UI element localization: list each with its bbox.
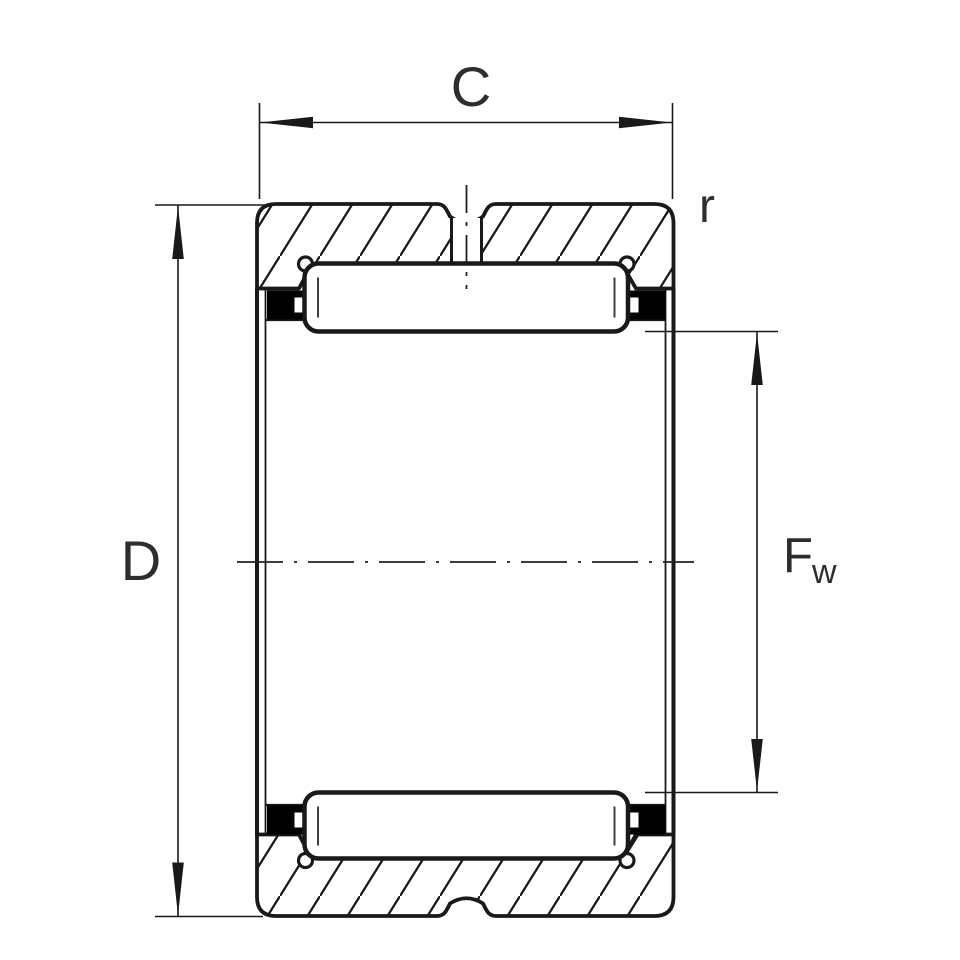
arrowhead-up (751, 333, 763, 385)
dimension-c: C (260, 55, 673, 199)
dimension-d: D (121, 205, 266, 917)
bearing-drawing-canvas: C D F w r (0, 0, 960, 960)
label-c: C (451, 55, 491, 118)
bearing-cross-section-diagram: C D F w r (0, 0, 960, 960)
arrowhead-down (172, 863, 184, 916)
needle-roller-bottom (305, 793, 629, 859)
label-fw-sub: w (811, 553, 837, 591)
arrowhead-right (619, 117, 672, 128)
label-fw-main: F (783, 529, 813, 583)
arrowhead-down (751, 739, 763, 791)
arrowhead-left (260, 117, 313, 128)
label-r: r (699, 180, 715, 233)
arrowhead-up (172, 206, 184, 259)
label-d: D (121, 529, 161, 592)
